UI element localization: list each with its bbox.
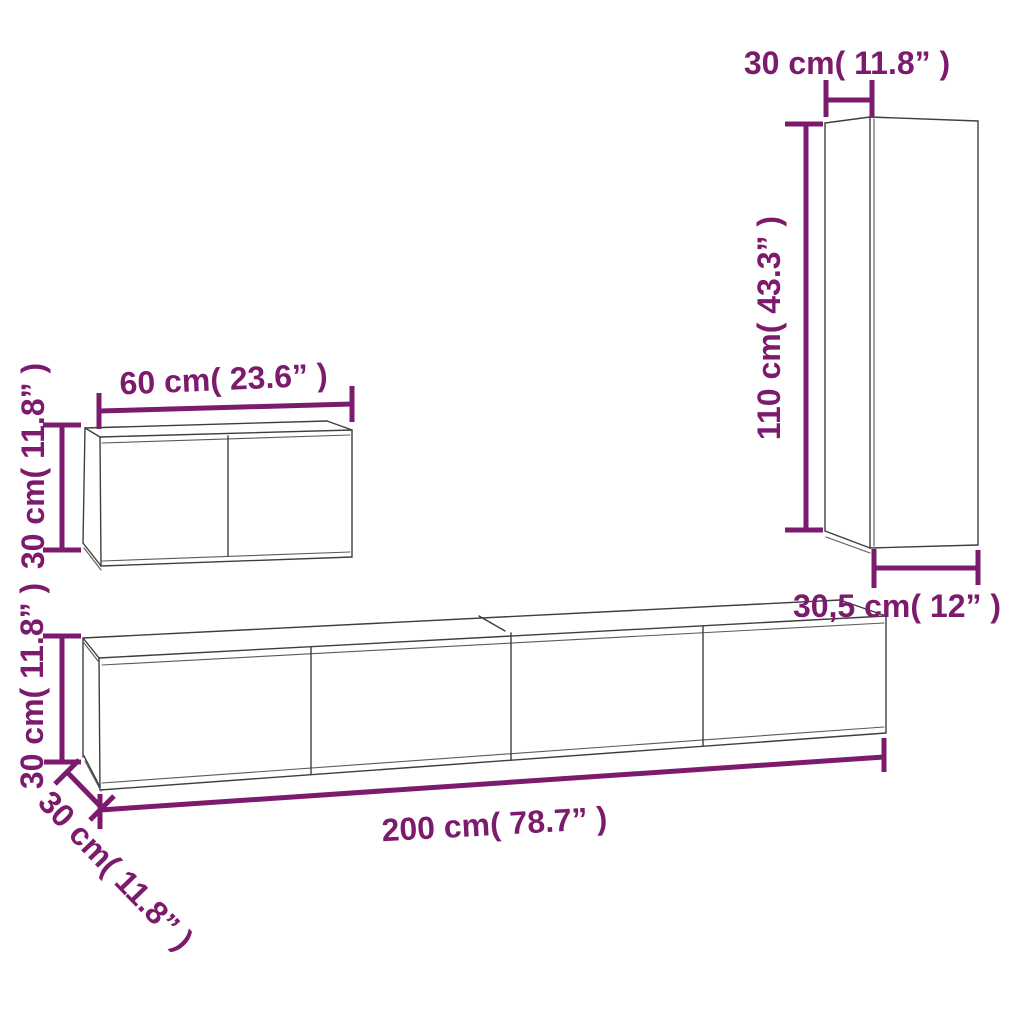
small-cabinet-top-right-slant: [327, 421, 352, 430]
tall-cabinet-bottom-edge: [870, 545, 978, 548]
small-cabinet-left-bottom-edge: [83, 543, 101, 566]
dim-tall-cabinet-height: 110 cm( 43.3” ): [751, 124, 823, 530]
tv-stand-front-top-edge: [99, 616, 886, 658]
tv-stand-front-left-edge: [99, 658, 100, 790]
dim-tall-cabinet-depth: 30,5 cm( 12” ): [793, 549, 1001, 624]
tv-stand: [83, 600, 886, 791]
dim-tv-stand-height: 30 cm( 11.8” ): [14, 583, 81, 789]
dim-tall-cabinet-width: 30 cm( 11.8” ): [744, 45, 950, 117]
small-cabinet-bottom-edge: [101, 557, 352, 566]
tall-cabinet-top-edge: [870, 117, 978, 121]
tv-stand-top-left-panel: [84, 643, 98, 661]
tv-stand-width-label: 200 cm( 78.7” ): [381, 800, 609, 849]
dimension-diagram-canvas: 30 cm( 11.8” ) 110 cm( 43.3” ) 30,5 cm( …: [0, 0, 1024, 1024]
tall-cabinet-depth-label: 30,5 cm( 12” ): [793, 588, 1001, 624]
dim-line: [100, 757, 884, 810]
tall-cabinet-height-label: 110 cm( 43.3” ): [751, 216, 787, 440]
tall-cabinet-width-label: 30 cm( 11.8” ): [744, 45, 950, 81]
tv-stand-height-label: 30 cm( 11.8” ): [14, 583, 50, 789]
tv-stand-top-left-slant: [83, 638, 99, 658]
dim-small-cabinet-height: 30 cm( 11.8” ): [15, 363, 81, 569]
small-cabinet: [83, 421, 352, 570]
small-cabinet-width-label: 60 cm( 23.6” ): [119, 356, 328, 401]
small-cabinet-door-bottom-edge: [102, 552, 350, 561]
small-cabinet-height-label: 30 cm( 11.8” ): [15, 363, 51, 569]
tv-stand-door-top-edge: [102, 623, 884, 665]
dim-tv-stand-depth: 30 cm( 11.8” ): [31, 760, 200, 957]
tv-stand-door-bottom-edge: [102, 727, 884, 783]
dim-line: [99, 404, 352, 411]
tall-cabinet: [825, 117, 978, 553]
tall-cabinet-top-left-slant: [825, 117, 870, 123]
tv-stand-rear-top-edge: [83, 600, 840, 638]
small-cabinet-rear-edge: [83, 428, 85, 543]
small-cabinet-left-bottom-panel: [84, 548, 101, 570]
dim-small-cabinet-width: 60 cm( 23.6” ): [99, 356, 352, 429]
small-cabinet-front-left-edge: [100, 437, 101, 566]
tv-stand-left-bottom-edge: [84, 756, 100, 787]
tv-stand-unit-junction-slant: [479, 616, 505, 631]
tv-stand-left-bottom-panel: [85, 761, 101, 791]
small-cabinet-top-left-slant: [85, 428, 100, 437]
small-cabinet-rear-top-edge: [85, 421, 327, 428]
